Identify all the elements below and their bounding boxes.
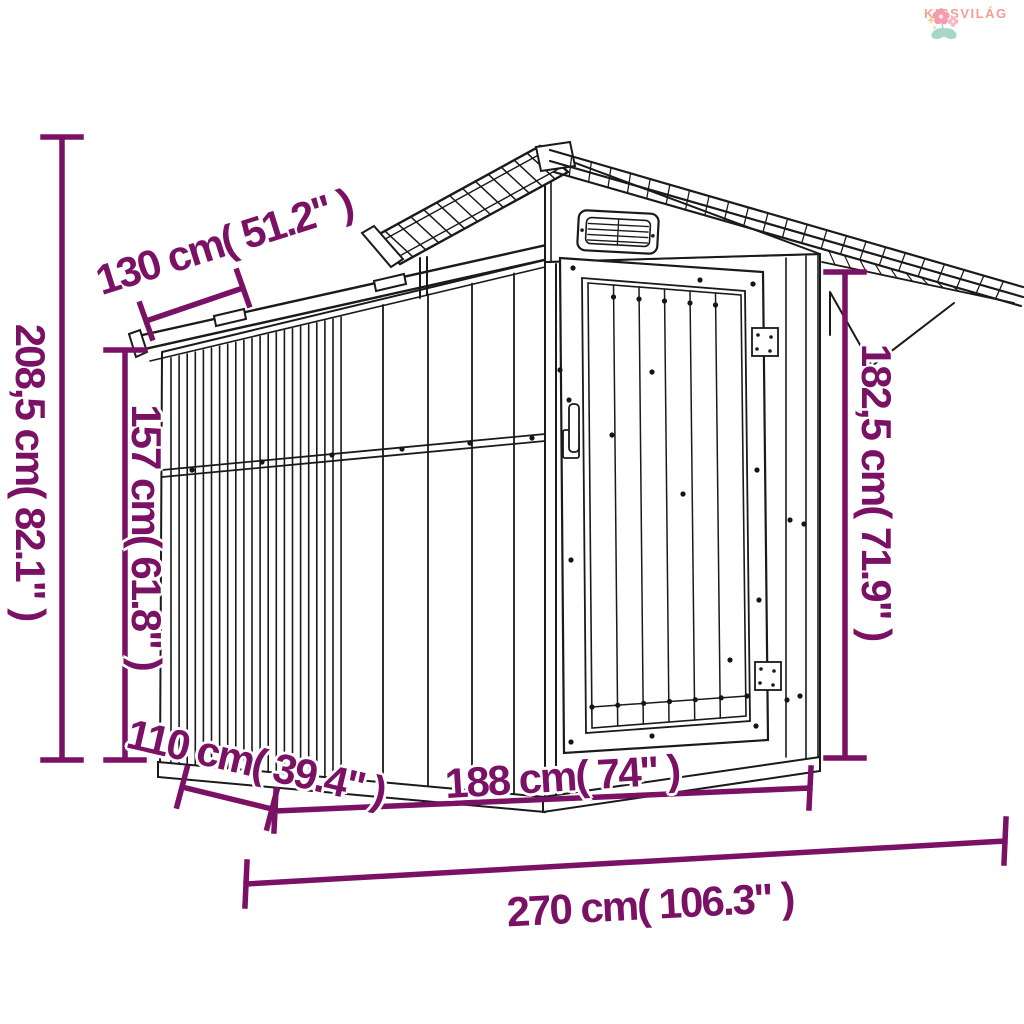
label-total-height: 208,5 cm( 82.1" ) <box>6 324 54 620</box>
door <box>560 258 781 753</box>
vent-grille <box>577 210 659 254</box>
label-right-height: 182,5 cm( 71.9" ) <box>852 344 900 640</box>
door-hinge-bottom <box>755 662 781 690</box>
door-hinge-top <box>752 328 778 356</box>
product-dimension-diagram: 208,5 cm( 82.1" ) 157 cm( 61.8" ) 182,5 … <box>0 0 1024 1024</box>
brand-logo: KISSVILÁG <box>924 6 1008 21</box>
flower-logo-icon <box>924 6 964 42</box>
label-wall-height: 157 cm( 61.8" ) <box>122 404 170 669</box>
